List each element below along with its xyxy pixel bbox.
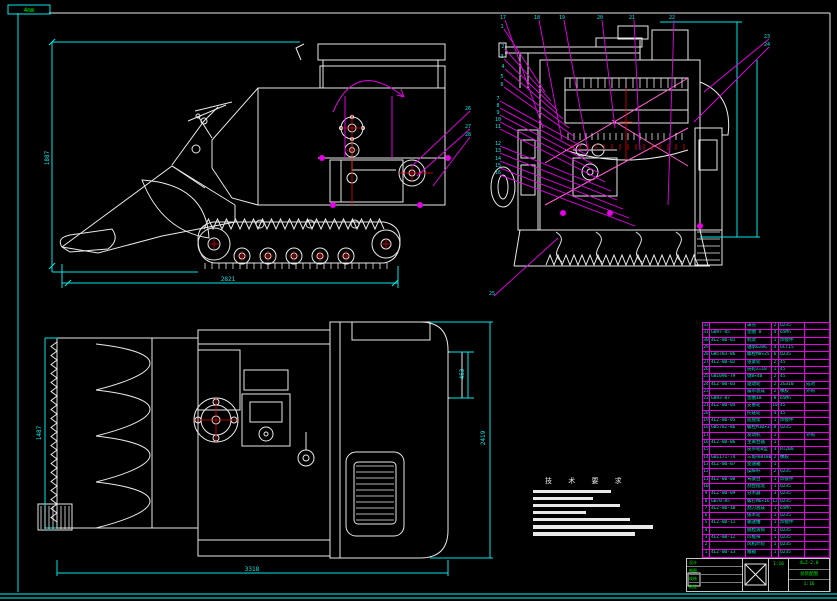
bom-cell: 4LZ-00-10	[710, 506, 746, 512]
bom-cell: 2	[772, 469, 779, 475]
bom-cell: Q235	[779, 323, 805, 329]
bom-cell: 12	[703, 469, 710, 475]
bom-cell: 凹板筛	[746, 535, 772, 541]
bom-cell: GB5783-86	[710, 352, 746, 358]
bom-parts-table: 32罩壳2Q23531GB97-85垫圈 8465Mn304LZ-00-01机架…	[702, 322, 830, 558]
bom-cell: 垫圈10	[746, 396, 772, 402]
bom-cell: 螺栓M8×25	[746, 352, 772, 358]
bom-cell	[779, 440, 805, 446]
bom-cell	[805, 367, 829, 373]
balloon-number: 17	[500, 15, 506, 21]
bom-cell: 12	[772, 499, 779, 505]
balloon-number: 26	[465, 106, 471, 112]
bom-cell	[805, 352, 829, 358]
bom-cell: 2	[772, 455, 779, 461]
bom-cell: 焊接件	[779, 520, 805, 526]
bom-cell: 45	[779, 360, 805, 366]
bom-cell	[710, 513, 746, 519]
bom-cell	[805, 418, 829, 424]
bom-cell	[805, 513, 829, 519]
bom-cell: 成对	[805, 382, 829, 388]
balloon-number: 1	[500, 24, 503, 30]
bom-cell	[805, 484, 829, 490]
bom-cell	[779, 462, 805, 468]
bom-row: 23履带总成2橡胶外购	[703, 389, 829, 396]
bom-cell	[805, 411, 829, 417]
bom-cell: 8	[703, 499, 710, 505]
balloon-number: 6	[500, 82, 503, 88]
balloon-number: 16	[495, 170, 501, 176]
bom-row: 28GB5783-86螺栓M8×256Q235	[703, 352, 829, 359]
bom-cell: GB70-85	[710, 499, 746, 505]
bom-cell: GB1096-79	[710, 374, 746, 380]
bom-cell: 4LZ-00-08	[710, 477, 746, 483]
bom-cell: 29	[703, 345, 710, 351]
bom-cell: 驾驶台	[746, 477, 772, 483]
sheet-scale-label: 4mm	[24, 7, 35, 14]
bom-cell	[779, 433, 805, 439]
title-block-info: 4LZ-2.0	[789, 559, 829, 570]
title-block: 设计制图校核批准 1:16 4LZ-2.0总装配图1:16	[686, 558, 830, 592]
bom-cell: GB5782-86	[710, 425, 746, 431]
bom-row: 29轴承62064GCr15	[703, 345, 829, 352]
dim-top-offset: 453	[459, 368, 466, 379]
bom-cell: 65Mn	[779, 396, 805, 402]
bom-cell: 26	[703, 367, 710, 373]
bom-cell: 2	[772, 389, 779, 395]
bom-cell: Q235	[779, 352, 805, 358]
bom-row: 25GB1096-79键8×40245	[703, 374, 829, 381]
balloon-number: 7	[496, 96, 499, 102]
bom-row: 74LZ-00-10割刀总成165Mn	[703, 506, 829, 513]
bom-cell: HT200	[779, 447, 805, 453]
bom-cell: 履带总成	[746, 389, 772, 395]
notes-line	[533, 525, 653, 529]
bom-cell: 1	[703, 550, 710, 557]
bom-row: 18GB5782-86螺栓M10×358Q235	[703, 425, 829, 432]
bom-cell	[710, 484, 746, 490]
balloon-number: 28	[465, 132, 471, 138]
bom-row: 15皮带轮B型3HT200	[703, 447, 829, 454]
bom-cell: 1	[772, 338, 779, 344]
bom-cell	[805, 330, 829, 336]
bom-cell: 1	[772, 367, 779, 373]
bom-row: 54LZ-00-11输送槽1焊接件	[703, 520, 829, 527]
bom-cell: 1	[772, 484, 779, 490]
bom-cell: 橡胶	[779, 389, 805, 395]
bom-row: 2风机叶轮1Q235	[703, 542, 829, 549]
bom-cell: 链轮Z=18	[746, 367, 772, 373]
bom-cell: 14	[703, 455, 710, 461]
bom-cell: 4LZ-00-02	[710, 360, 746, 366]
balloon-number: 3	[500, 54, 503, 60]
balloon-number: 27	[465, 124, 471, 130]
balloon-number: 10	[495, 117, 501, 123]
bom-row: 17发动机1外购	[703, 433, 829, 440]
bom-cell	[805, 477, 829, 483]
bom-cell: 三角带B1800	[746, 455, 772, 461]
bom-cell: 23	[703, 389, 710, 395]
bom-row: 94LZ-00-09分禾器3Q235	[703, 491, 829, 498]
bom-cell: 焊接件	[779, 418, 805, 424]
bom-cell: GB93-87	[710, 396, 746, 402]
balloon-number: 21	[629, 15, 635, 21]
bom-cell: 垫圈 8	[746, 330, 772, 336]
bom-cell: GB1171-74	[710, 455, 746, 461]
balloon-number: 24	[764, 42, 770, 48]
bom-row: 32罩壳2Q235	[703, 323, 829, 330]
bom-cell: 键8×40	[746, 374, 772, 380]
bom-cell	[805, 528, 829, 534]
bom-cell	[805, 447, 829, 453]
bom-cell: 张紧轮	[746, 360, 772, 366]
bom-row: 8GB70-85螺钉M6×1612Q235	[703, 499, 829, 506]
title-block-field: 批准	[687, 583, 742, 591]
bom-cell: 发动机	[746, 433, 772, 439]
bom-cell: 3	[772, 447, 779, 453]
bom-cell	[805, 455, 829, 461]
bom-cell	[805, 396, 829, 402]
bom-cell	[805, 360, 829, 366]
bom-cell	[710, 433, 746, 439]
balloon-number: 13	[495, 148, 501, 154]
bom-cell: Q235	[779, 542, 805, 548]
bom-cell	[805, 440, 829, 446]
dimension-lines: 1887 2821 1487 3318 2419 453	[36, 39, 493, 576]
bom-cell: GB97-85	[710, 330, 746, 336]
bom-cell: 4LZ-00-03	[710, 382, 746, 388]
bom-cell: 19	[703, 418, 710, 424]
notes-text-lines	[533, 490, 703, 536]
balloon-number: 5	[500, 74, 503, 80]
title-block-field: 制图	[687, 567, 742, 575]
title-block-field: 校核	[687, 575, 742, 583]
bom-cell: 45	[779, 411, 805, 417]
bom-cell: 焊接件	[779, 477, 805, 483]
balloon-number: 19	[559, 15, 565, 21]
bom-cell: 罩壳	[746, 323, 772, 329]
bom-cell: 螺栓M10×35	[746, 425, 772, 431]
bom-cell: 外购	[805, 433, 829, 439]
bom-cell: 16	[703, 440, 710, 446]
bom-cell: 托链轮	[746, 411, 772, 417]
bom-cell: 2	[772, 323, 779, 329]
bom-row: 244LZ-00-03驱动轮2ZG310成对	[703, 382, 829, 389]
projection-mark	[743, 559, 769, 591]
bom-cell: 橡胶	[779, 455, 805, 461]
bom-cell: 螺钉M6×16	[746, 499, 772, 505]
bom-cell: 割台搅龙	[746, 484, 772, 490]
bom-cell: 拨禾轮	[746, 513, 772, 519]
bom-cell: 操纵杆	[746, 469, 772, 475]
bom-cell: 4LZ-00-06	[710, 440, 746, 446]
bom-row: 134LZ-00-07变速箱1	[703, 462, 829, 469]
bom-cell: 2	[772, 360, 779, 366]
title-block-info-column: 4LZ-2.0总装配图1:16	[789, 559, 829, 591]
bom-row: 14LZ-00-13粮箱1Q235	[703, 550, 829, 557]
notes-title: 技 术 要 求	[545, 476, 703, 486]
bom-cell: 45	[779, 367, 805, 373]
bom-row: 214LZ-00-04支重轮1045	[703, 403, 829, 410]
bom-cell: 4	[772, 330, 779, 336]
bom-cell: ZG310	[779, 382, 805, 388]
bom-cell	[805, 499, 829, 505]
bom-cell: 4LZ-00-13	[710, 550, 746, 557]
bom-cell: 3	[703, 535, 710, 541]
bom-cell: 9	[703, 491, 710, 497]
bom-cell: 底盘架	[746, 418, 772, 424]
bom-cell: 24	[703, 382, 710, 388]
bom-cell: 22	[703, 396, 710, 402]
bom-cell: 1	[772, 477, 779, 483]
bom-cell	[805, 506, 829, 512]
bom-cell	[710, 345, 746, 351]
bom-cell: 65Mn	[779, 506, 805, 512]
bom-cell: 32	[703, 323, 710, 329]
bom-cell: 4LZ-00-07	[710, 462, 746, 468]
bom-row: 6拨禾轮1Q235	[703, 513, 829, 520]
bom-cell	[710, 447, 746, 453]
bom-cell: 17	[703, 433, 710, 439]
balloon-number: 8	[496, 103, 499, 109]
bom-cell: 输送槽	[746, 520, 772, 526]
bom-cell: 2	[703, 542, 710, 548]
dim-top-depth: 2419	[480, 430, 487, 445]
bom-cell: 外购	[805, 389, 829, 395]
balloon-number: 15	[495, 163, 501, 169]
bom-cell: 31	[703, 330, 710, 336]
bom-cell	[805, 403, 829, 409]
bom-row: 14GB1171-74三角带B18002橡胶	[703, 455, 829, 462]
bom-cell	[805, 542, 829, 548]
balloon-number: 4	[501, 64, 504, 70]
bom-cell	[805, 323, 829, 329]
bom-cell	[710, 411, 746, 417]
bom-cell: Q235	[779, 499, 805, 505]
title-block-info: 总装配图	[789, 570, 829, 581]
bom-row: 4脱粒滚筒1Q235	[703, 528, 829, 535]
bom-cell	[710, 542, 746, 548]
bom-row: 12操纵杆2Q235	[703, 469, 829, 476]
bom-cell: 1	[772, 528, 779, 534]
bom-cell: 7	[703, 506, 710, 512]
bom-cell: 30	[703, 338, 710, 344]
bom-row: 114LZ-00-08驾驶台1焊接件	[703, 477, 829, 484]
bom-cell: 支重轮	[746, 403, 772, 409]
balloon-number: 22	[669, 15, 675, 21]
bom-cell	[805, 520, 829, 526]
bom-cell: 27	[703, 360, 710, 366]
title-block-field: 设计	[687, 559, 742, 567]
bom-cell: Q235	[779, 491, 805, 497]
bom-cell: 1	[772, 506, 779, 512]
bom-cell: 粮箱	[746, 550, 772, 557]
bom-cell: Q235	[779, 469, 805, 475]
balloon-number: 25	[489, 291, 495, 297]
bom-cell: 4LZ-00-09	[710, 491, 746, 497]
bom-cell: Q235	[779, 425, 805, 431]
balloon-callouts: 1718192021222324123456789101112131415162…	[412, 15, 770, 297]
bom-cell: 1	[772, 520, 779, 526]
bom-cell: 1	[772, 440, 779, 446]
bom-cell: 1	[772, 418, 779, 424]
bom-cell: 8	[772, 425, 779, 431]
bom-cell: Q235	[779, 484, 805, 490]
bom-cell: 1	[772, 462, 779, 468]
bom-row: 31GB97-85垫圈 8465Mn	[703, 330, 829, 337]
bom-row: 34LZ-00-12凹板筛1Q235	[703, 535, 829, 542]
bom-cell: 4	[703, 528, 710, 534]
notes-line	[533, 497, 593, 501]
bom-cell: 1	[772, 513, 779, 519]
front-view-dim-lines	[660, 22, 760, 237]
bom-cell: 15	[703, 447, 710, 453]
bom-cell	[805, 425, 829, 431]
bom-cell: 4LZ-00-11	[710, 520, 746, 526]
front-view-drawing	[491, 26, 729, 266]
bom-cell	[710, 389, 746, 395]
bom-cell: 4LZ-00-01	[710, 338, 746, 344]
title-block-scale: 1:16	[769, 559, 789, 591]
bom-cell: 45	[779, 403, 805, 409]
bom-cell: 皮带轮B型	[746, 447, 772, 453]
balloon-number: 14	[495, 156, 501, 162]
bom-row: 194LZ-00-05底盘架1焊接件	[703, 418, 829, 425]
bom-cell: 1	[772, 535, 779, 541]
balloon-number: 12	[495, 141, 501, 147]
bom-cell: 13	[703, 462, 710, 468]
notes-line	[533, 504, 620, 508]
bom-cell	[805, 345, 829, 351]
bom-row: 274LZ-00-02张紧轮245	[703, 360, 829, 367]
bom-cell: 10	[703, 484, 710, 490]
bom-cell: 主离合器	[746, 440, 772, 446]
bom-row: 10割台搅龙1Q235	[703, 484, 829, 491]
bom-row: 26链轮Z=18145	[703, 367, 829, 374]
bom-cell: 65Mn	[779, 330, 805, 336]
side-view-drawing	[60, 44, 448, 264]
balloon-number: 18	[534, 15, 540, 21]
bom-cell: 20	[703, 411, 710, 417]
bom-row: 164LZ-00-06主离合器1	[703, 440, 829, 447]
bom-cell: 1	[772, 542, 779, 548]
notes-line	[533, 532, 635, 536]
bom-cell: 2	[772, 382, 779, 388]
bom-row: 20托链轮445	[703, 411, 829, 418]
bom-cell: Q235	[779, 513, 805, 519]
bom-cell: 4LZ-00-05	[710, 418, 746, 424]
bom-cell: 25	[703, 374, 710, 380]
bom-cell: 6	[703, 513, 710, 519]
bom-cell	[805, 374, 829, 380]
bom-cell: 3	[772, 491, 779, 497]
front-view-belt-lines	[545, 78, 703, 229]
bom-cell	[805, 338, 829, 344]
bom-cell: 11	[703, 477, 710, 483]
bom-cell: 4LZ-00-04	[710, 403, 746, 409]
notes-line	[533, 518, 630, 522]
bom-cell: 4	[772, 411, 779, 417]
bom-cell: Q235	[779, 528, 805, 534]
bom-cell: 分禾器	[746, 491, 772, 497]
bom-cell	[710, 469, 746, 475]
bom-cell: 4LZ-00-12	[710, 535, 746, 541]
bom-cell	[805, 469, 829, 475]
technical-notes: 技 术 要 求	[533, 476, 703, 536]
bom-cell: 4	[772, 345, 779, 351]
bom-cell	[805, 535, 829, 541]
balloon-number: 11	[495, 124, 501, 130]
bom-cell	[805, 491, 829, 497]
title-block-info: 1:16	[789, 580, 829, 591]
notes-line	[533, 511, 586, 515]
bom-cell	[710, 323, 746, 329]
bom-cell: 脱粒滚筒	[746, 528, 772, 534]
bom-cell: 割刀总成	[746, 506, 772, 512]
bom-cell: 变速箱	[746, 462, 772, 468]
dim-side-length: 2821	[221, 276, 236, 283]
title-block-signature-grid: 设计制图校核批准	[687, 559, 743, 591]
bom-cell: Q235	[779, 550, 805, 557]
bom-cell: 8	[772, 396, 779, 402]
dim-side-height: 1887	[44, 150, 51, 165]
bom-cell	[710, 528, 746, 534]
bom-cell: 6	[772, 352, 779, 358]
bom-cell: 焊接件	[779, 338, 805, 344]
bom-cell: 10	[772, 403, 779, 409]
side-view-magenta-details	[320, 81, 451, 208]
bom-row: 304LZ-00-01机架1焊接件	[703, 338, 829, 345]
bom-cell: 45	[779, 374, 805, 380]
bom-cell	[710, 367, 746, 373]
bom-cell: 18	[703, 425, 710, 431]
bom-cell: 风机叶轮	[746, 542, 772, 548]
balloon-number: 2	[501, 44, 504, 50]
bom-cell: 驱动轮	[746, 382, 772, 388]
dim-top-width: 1487	[36, 425, 43, 440]
bom-cell: 2	[772, 374, 779, 380]
balloon-number: 23	[764, 34, 770, 40]
balloon-number: 20	[597, 15, 603, 21]
bom-cell: 轴承6206	[746, 345, 772, 351]
cad-drawing-sheet: 4mm	[0, 0, 837, 601]
bom-cell	[805, 462, 829, 468]
dim-top-length: 3318	[245, 566, 260, 573]
bom-row: 22GB93-87垫圈10865Mn	[703, 396, 829, 403]
bom-cell: 21	[703, 403, 710, 409]
top-view-drawing	[38, 322, 462, 558]
notes-line	[533, 490, 611, 494]
bom-cell: 1	[772, 550, 779, 557]
bom-cell: Q235	[779, 535, 805, 541]
bom-cell	[805, 550, 829, 557]
bom-cell: 28	[703, 352, 710, 358]
balloon-number: 9	[496, 110, 499, 116]
bom-cell: 机架	[746, 338, 772, 344]
bom-cell: 1	[772, 433, 779, 439]
hatch-and-teeth-decor	[41, 78, 720, 529]
bom-cell: 5	[703, 520, 710, 526]
bom-cell: GCr15	[779, 345, 805, 351]
